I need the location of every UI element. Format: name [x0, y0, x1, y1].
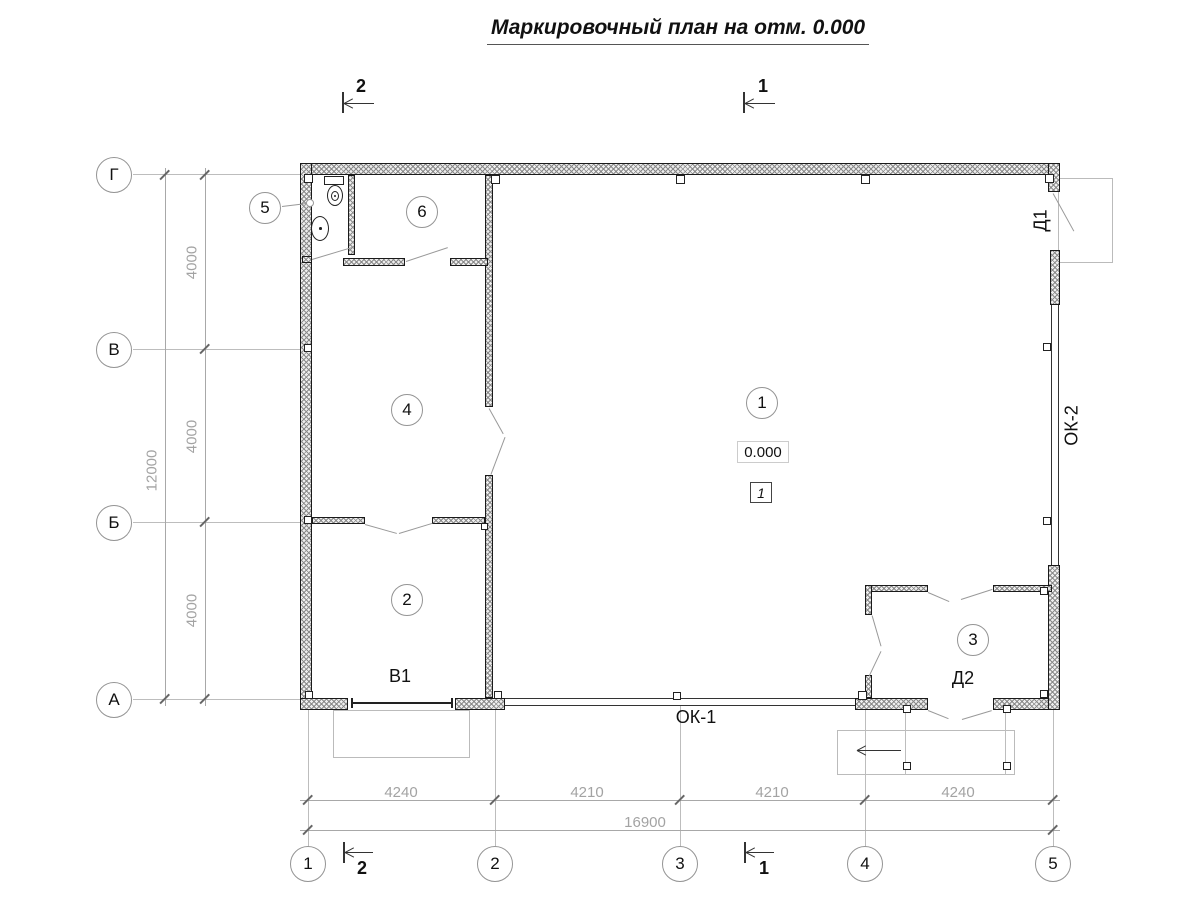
- porch-column: [903, 705, 911, 713]
- axis-label: 4: [860, 854, 869, 874]
- axis-label: 2: [490, 854, 499, 874]
- washbasin-dot: [319, 227, 322, 230]
- axis-circle-v: В: [96, 332, 132, 368]
- section-marker-line: [345, 852, 373, 853]
- dim-line-left-total: [165, 168, 166, 706]
- toilet-tank-icon: [324, 176, 344, 185]
- axis-label: 5: [1048, 854, 1057, 874]
- section-label-bottom-2: 2: [352, 858, 372, 879]
- pilaster: [676, 175, 685, 184]
- wall-interior-vertical-upper: [485, 175, 493, 407]
- elevation-value: 0.000: [744, 444, 782, 461]
- porch-column: [1003, 762, 1011, 770]
- gate-label-v1: В1: [380, 666, 420, 687]
- window-label-ok2: ОК-2: [1062, 396, 1083, 456]
- dim-bottom-1: 4240: [361, 784, 441, 801]
- section-marker-line: [344, 103, 374, 104]
- wall-bottom-2: [455, 698, 505, 710]
- dim-bottom-total: 16900: [600, 814, 690, 831]
- pilaster: [861, 175, 870, 184]
- elevation-mark: 0.000: [737, 441, 789, 463]
- pilaster: [481, 523, 488, 530]
- wall-right-stub: [1050, 250, 1060, 305]
- axis-label: В: [108, 340, 119, 360]
- toilet-dot: [334, 195, 336, 197]
- gate-end: [451, 698, 453, 708]
- door-swing-room6: [406, 247, 448, 262]
- dim-bottom-3: 4210: [732, 784, 812, 801]
- door-label-d2: Д2: [941, 668, 985, 689]
- window-label-ok1: ОК-1: [666, 707, 726, 728]
- room-number: 5: [260, 198, 269, 218]
- room-number: 1: [757, 393, 766, 413]
- wall-top: [300, 163, 1060, 175]
- wall-interior-vertical-lower: [485, 475, 493, 698]
- window-impost: [1043, 517, 1051, 525]
- window-impost: [673, 692, 681, 700]
- wall-room5-room6: [348, 175, 355, 255]
- pilaster: [494, 691, 502, 699]
- window-ok2: [1051, 305, 1059, 565]
- drawing-title: Маркировочный план на отм. 0.000: [487, 16, 869, 45]
- pilaster: [1040, 587, 1048, 595]
- axis-line-b: [133, 522, 300, 523]
- door-swing-tambour-west-b: [868, 651, 881, 676]
- dim-left-2: 4000: [184, 407, 201, 467]
- room-number: 6: [417, 202, 426, 222]
- wall-tambour-west-upper: [865, 585, 872, 615]
- axis-circle-2: 2: [477, 846, 513, 882]
- section-label-top-1: 1: [753, 76, 773, 97]
- wall-left: [300, 163, 312, 710]
- door-swing-room4-a: [488, 408, 503, 434]
- wall-room6-bottom-right: [450, 258, 488, 266]
- dim-bottom-4: 4240: [918, 784, 998, 801]
- axis-label: Б: [108, 513, 119, 533]
- axis-circle-g: Г: [96, 157, 132, 193]
- section-marker-line: [745, 103, 775, 104]
- room-circle-5: 5: [249, 192, 281, 224]
- wall-b-axis-left: [312, 517, 365, 524]
- dim-bottom-2: 4210: [547, 784, 627, 801]
- wall-room6-bottom-left: [343, 258, 405, 266]
- dim-left-total: 12000: [144, 436, 161, 506]
- room-circle-3: 3: [957, 624, 989, 656]
- pilaster: [304, 344, 312, 352]
- dim-left-3: 4000: [184, 581, 201, 641]
- door-swing-room2-a: [365, 524, 397, 534]
- window-impost: [1043, 343, 1051, 351]
- porch-column: [903, 762, 911, 770]
- wall-tambour-top-left: [870, 585, 928, 592]
- pilaster: [305, 691, 313, 699]
- door-swing-tambour-west-a: [871, 615, 881, 646]
- axis-label: 3: [675, 854, 684, 874]
- room-circle-1: 1: [746, 387, 778, 419]
- door-swing-d2-a: [928, 710, 948, 719]
- room5-leader-dot: [306, 199, 314, 207]
- entrance-arrow: [857, 750, 901, 751]
- room-number: 4: [402, 400, 411, 420]
- wall-b-axis-right: [432, 517, 485, 524]
- floor-type-mark: 1: [750, 482, 772, 503]
- room-circle-4: 4: [391, 394, 423, 426]
- section-label-bottom-1: 1: [754, 858, 774, 879]
- axis-label: А: [108, 690, 119, 710]
- section-marker-line: [746, 852, 774, 853]
- porch-column: [1003, 705, 1011, 713]
- gate-leaf-v1: [352, 702, 452, 704]
- axis-circle-3: 3: [662, 846, 698, 882]
- pilaster: [304, 174, 313, 183]
- axis-line-a: [133, 699, 300, 700]
- axis-label: 1: [303, 854, 312, 874]
- room-circle-6: 6: [406, 196, 438, 228]
- door-swing-tambour-top-a: [928, 592, 949, 602]
- dim-line-left-segments: [205, 168, 206, 706]
- room-number: 3: [968, 630, 977, 650]
- pilaster: [1045, 174, 1054, 183]
- door-swing-room4-b: [490, 437, 505, 474]
- pilaster: [304, 516, 312, 524]
- wall-bottom-1: [300, 698, 348, 710]
- axis-circle-5: 5: [1035, 846, 1071, 882]
- dim-left-1: 4000: [184, 233, 201, 293]
- door-swing-room2-b: [399, 523, 432, 534]
- axis-circle-4: 4: [847, 846, 883, 882]
- door-label-d1: Д1: [1031, 201, 1052, 241]
- door-swing-tambour-top-b: [961, 589, 992, 600]
- axis-label: Г: [109, 165, 118, 185]
- pilaster: [491, 175, 500, 184]
- gate-ramp-v1: [333, 710, 470, 758]
- floor-plan-canvas: { "title": "Маркировочный план на отм. 0…: [0, 0, 1200, 900]
- axis-circle-b: Б: [96, 505, 132, 541]
- axis-line-v: [133, 349, 300, 350]
- room-circle-2: 2: [391, 584, 423, 616]
- floor-type-value: 1: [757, 485, 765, 501]
- room-number: 2: [402, 590, 411, 610]
- gate-end: [351, 698, 353, 708]
- door-swing-d2-b: [962, 710, 992, 720]
- axis-line-2: [495, 710, 496, 846]
- wall-room5-stub: [302, 256, 312, 263]
- section-label-top-2: 2: [351, 76, 371, 97]
- axis-circle-a: А: [96, 682, 132, 718]
- pilaster: [858, 691, 867, 700]
- axis-line-g: [133, 174, 300, 175]
- axis-circle-1: 1: [290, 846, 326, 882]
- pilaster: [1040, 690, 1048, 698]
